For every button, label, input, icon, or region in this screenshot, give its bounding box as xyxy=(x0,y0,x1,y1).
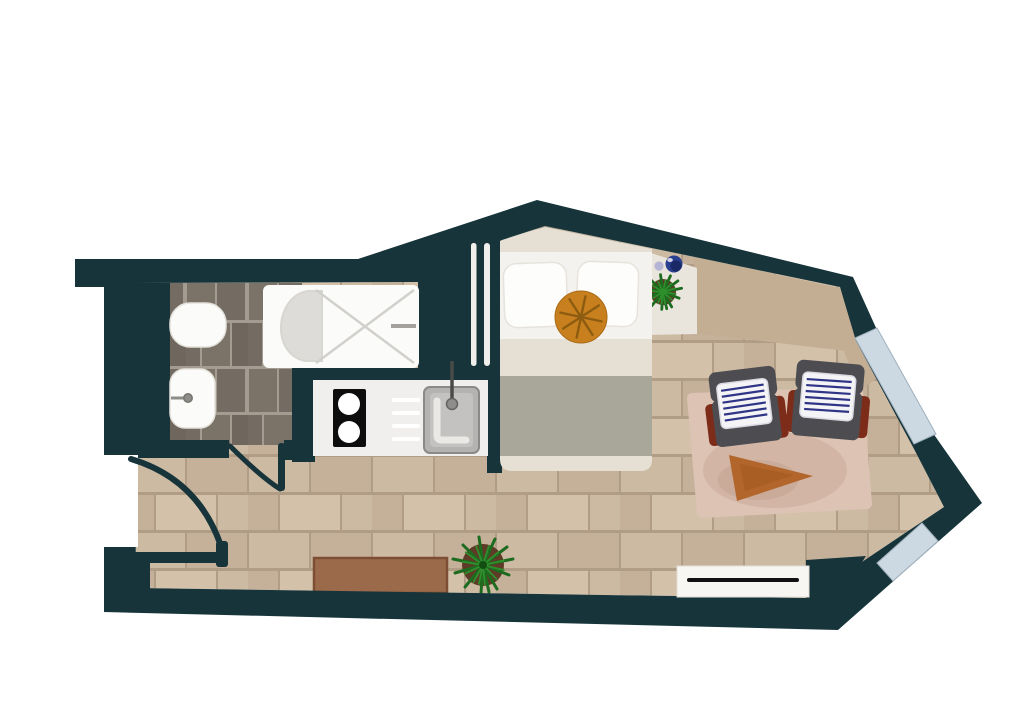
entry-door-opening xyxy=(99,455,138,547)
decor-sphere-highlight xyxy=(667,258,673,262)
kitchen-faucet-knob xyxy=(447,399,458,410)
wall-slat xyxy=(484,243,490,366)
decor-sphere-small xyxy=(654,261,663,270)
entry-door-leaf xyxy=(216,541,228,567)
bathroom-door-leaf xyxy=(278,443,285,491)
washbasin-tap-knob xyxy=(184,394,192,402)
radiator-slot xyxy=(687,578,799,582)
armchair-right xyxy=(785,359,873,442)
burner xyxy=(338,421,360,443)
bed-nook-wall-strip xyxy=(487,378,502,473)
bed-throw xyxy=(496,376,656,456)
bathtub-shower xyxy=(263,285,419,368)
bathroom-left-wall xyxy=(130,283,170,455)
decor-sphere-large-shade xyxy=(671,261,682,272)
toilet xyxy=(170,303,226,347)
washbasin xyxy=(170,369,215,428)
bathroom-bottom-wall xyxy=(132,440,229,458)
burner xyxy=(338,393,360,415)
floor-plan-drawing xyxy=(0,0,1024,723)
cooktop xyxy=(333,389,366,447)
radiator xyxy=(677,566,809,597)
doormat xyxy=(314,558,447,593)
bed xyxy=(496,222,656,474)
floor-plan-page xyxy=(0,0,1024,723)
wall-slat xyxy=(471,243,477,366)
left-wall-ledge xyxy=(127,552,224,563)
round-ottoman xyxy=(555,291,607,343)
